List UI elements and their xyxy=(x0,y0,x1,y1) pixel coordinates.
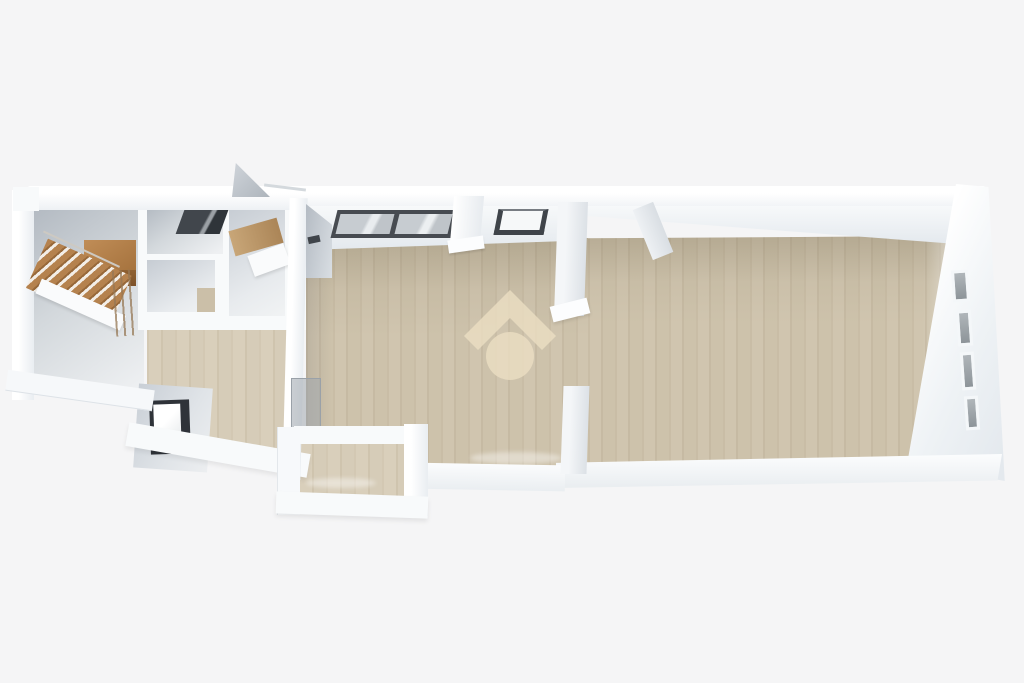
right-wall-window-2 xyxy=(956,310,973,347)
bottom-wall-central xyxy=(413,463,565,492)
central-large-window xyxy=(331,210,458,238)
house-logo-watermark-icon xyxy=(460,288,560,388)
partition-central-right-lower xyxy=(560,386,589,474)
right-wall-window-4 xyxy=(964,396,980,431)
right-room-floor-shading xyxy=(588,236,960,466)
central-small-window xyxy=(493,209,548,235)
central-floor-light-streak xyxy=(470,452,562,464)
alcove-light-streak xyxy=(306,478,376,488)
central-doorway-glass-leaf xyxy=(291,378,321,428)
central-large-window-pane-right xyxy=(394,214,452,234)
central-large-window-pane-left xyxy=(336,214,394,234)
outer-left-wall xyxy=(12,190,34,400)
floorplan-image xyxy=(0,0,1024,683)
top-left-corner xyxy=(13,187,39,211)
open-door-leaf-top xyxy=(232,163,270,197)
staircase-right-railing xyxy=(112,269,139,336)
alcove-floor xyxy=(298,442,406,498)
small-room-ceiling-window xyxy=(176,210,229,234)
right-wall-window-3 xyxy=(960,352,977,391)
small-room-middle-wood-sliver xyxy=(197,288,215,312)
alcove-top-wall xyxy=(294,426,410,444)
right-wall-window-1 xyxy=(951,269,970,302)
